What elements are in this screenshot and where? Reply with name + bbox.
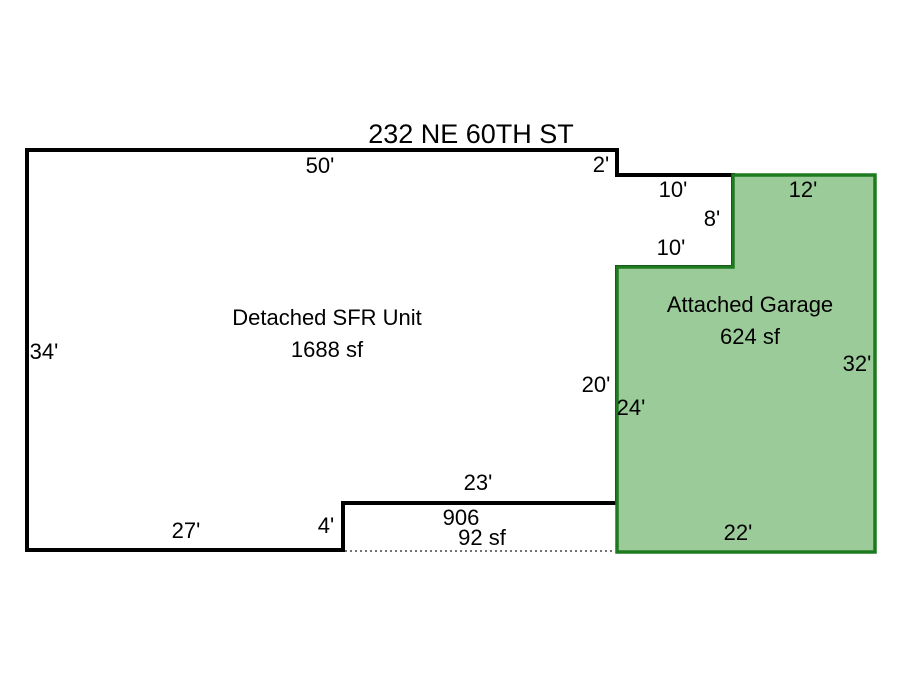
dim-garage-bottom: 22' [724,520,753,545]
dim-garage-left: 24' [617,395,646,420]
dim-notch-top: 10' [659,177,688,202]
dim-house-right: 20' [582,372,611,397]
dim-house-step-bottom: 4' [318,513,334,538]
house-area: 1688 sf [291,337,364,362]
dim-house-bottom: 27' [172,518,201,543]
dim-notch-bottom: 10' [657,235,686,260]
dim-house-top: 50' [306,153,335,178]
porch-area: 92 sf [458,525,507,550]
garage-area: 624 sf [720,324,781,349]
dim-house-step-right: 2' [593,152,609,177]
floorplan-sketch: 232 NE 60TH ST 50' 2' 10' 8' 10' 34' 20'… [0,0,900,675]
dim-house-left: 34' [30,339,59,364]
dim-garage-right: 32' [843,351,872,376]
dim-house-bottom-inner: 23' [464,470,493,495]
sketch-svg: 232 NE 60TH ST 50' 2' 10' 8' 10' 34' 20'… [0,0,900,675]
dim-notch-right: 8' [704,206,720,231]
garage-label: Attached Garage [667,292,833,317]
dim-garage-top: 12' [789,177,818,202]
address-title: 232 NE 60TH ST [368,119,574,149]
house-label: Detached SFR Unit [232,305,422,330]
